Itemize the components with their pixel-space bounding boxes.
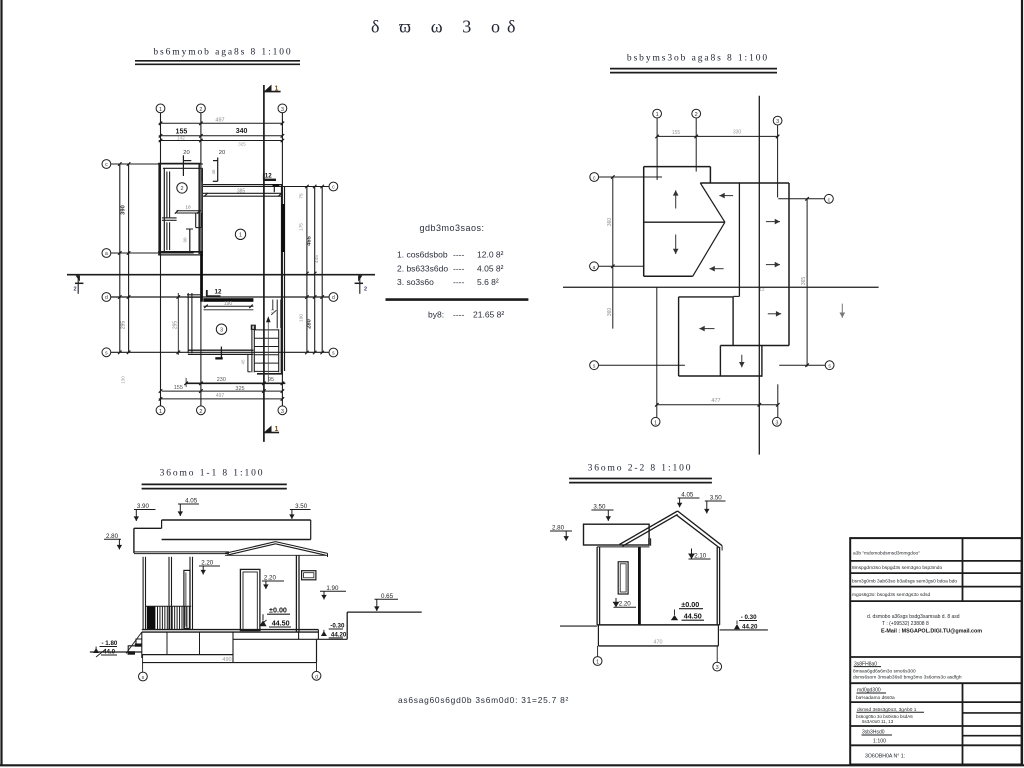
svg-text:365: 365 (801, 277, 807, 286)
svg-text:21.65 8²: 21.65 8² (473, 310, 504, 320)
svg-text:280: 280 (306, 319, 312, 329)
svg-text:c: c (828, 197, 831, 203)
svg-text:as6sag60s6gd0b 3s6m0d0: 31=2: as6sag60s6gd0b 3s6m0d0: 31=25.7 8² (398, 695, 569, 705)
svg-text:5.6 8²: 5.6 8² (477, 277, 499, 287)
svg-text:1: 1 (596, 660, 599, 666)
svg-text:s: s (828, 364, 831, 370)
svg-text:385: 385 (237, 189, 246, 195)
svg-text:1: 1 (275, 426, 279, 433)
svg-text:470: 470 (653, 640, 662, 646)
svg-text:1: 1 (239, 233, 242, 239)
svg-text:325: 325 (238, 142, 246, 147)
svg-text:445: 445 (314, 255, 320, 263)
svg-text:75: 75 (299, 193, 304, 199)
svg-text:-0.30: -0.30 (330, 623, 345, 630)
svg-text:2: 2 (199, 409, 202, 415)
svg-text:d: d (315, 674, 318, 680)
svg-text:175: 175 (299, 223, 304, 231)
svg-text:1:100: 1:100 (873, 739, 886, 745)
svg-text:360: 360 (607, 218, 613, 227)
svg-text:142: 142 (177, 135, 185, 140)
svg-text:130: 130 (121, 376, 126, 384)
svg-text:390: 390 (120, 205, 126, 215)
svg-text:----: ---- (453, 310, 464, 320)
svg-text:3: 3 (775, 420, 778, 426)
svg-text:477: 477 (711, 398, 720, 404)
svg-text:3.90: 3.90 (137, 503, 150, 510)
svg-text:E-Mail : MSGAPOL.DIGI.TU@gmaiI: E-Mail : MSGAPOL.DIGI.TU@gmaiI.com (881, 628, 982, 634)
svg-text:44.50: 44.50 (684, 612, 702, 621)
svg-text:2: 2 (695, 112, 698, 118)
svg-text:s: s (332, 351, 335, 357)
svg-text:c: c (105, 162, 108, 168)
svg-text:190: 190 (299, 314, 304, 322)
svg-text:1: 1 (275, 86, 279, 93)
svg-text:44.50: 44.50 (272, 618, 290, 627)
svg-text:----: ---- (453, 277, 464, 287)
svg-text:230: 230 (217, 377, 226, 383)
svg-text:by8:: by8: (428, 310, 444, 320)
svg-text:a: a (105, 251, 108, 257)
svg-text:497: 497 (216, 393, 225, 399)
svg-text:36omo 1-1 8 1:100: 36omo 1-1 8 1:100 (160, 469, 265, 479)
svg-text:1: 1 (159, 107, 162, 113)
svg-text:ba%adamo d6s0a: ba%adamo d6s0a (856, 695, 895, 701)
svg-text:3.50: 3.50 (593, 504, 606, 511)
svg-text:360: 360 (607, 308, 613, 317)
svg-text:6s3A0o0 11, 13: 6s3A0o0 11, 13 (862, 719, 894, 724)
svg-text:1: 1 (159, 409, 162, 415)
svg-text:2: 2 (180, 186, 183, 192)
svg-text:12.0 8²: 12.0 8² (477, 250, 504, 260)
svg-text:2.20: 2.20 (619, 601, 632, 608)
svg-text:bsbyms3ob aga8s 8 1:100: bsbyms3ob aga8s 8 1:100 (627, 54, 769, 64)
svg-text:bs6og05o 3o bs0is6o bsdA6: bs6og05o 3o bs0is6o bsdA6 (856, 714, 913, 719)
svg-text:330: 330 (733, 129, 742, 135)
svg-text:36omo 2-2 8 1:100: 36omo 2-2 8 1:100 (588, 464, 693, 474)
svg-text:d: d (105, 295, 108, 301)
svg-text:340: 340 (236, 128, 248, 135)
svg-text:2: 2 (199, 107, 202, 113)
svg-text:8msas6gd6s6m3o smo6s300: 8msas6gd6s6m3o smo6s300 (853, 668, 916, 674)
svg-text:- 1.80: - 1.80 (102, 640, 118, 647)
svg-text:20: 20 (219, 150, 225, 156)
svg-text:3. so3s6o: 3. so3s6o (397, 277, 434, 287)
svg-text:d. dsmobo a36sgs bsdg3samsab d: d. dsmobo a36sgs bsdg3samsab d. 8 asd (867, 614, 960, 620)
svg-text:18: 18 (185, 204, 191, 210)
svg-text:----: ---- (453, 250, 464, 260)
svg-text:- 0.30: - 0.30 (741, 614, 757, 621)
svg-text:bsm3g0mb 3ab63so b3a6sgs sem3g: bsm3g0mb 3ab63so b3a6sgs sem3gs0 bdoa bd… (852, 578, 957, 584)
svg-text:3.50: 3.50 (295, 503, 308, 510)
svg-text:12: 12 (265, 172, 272, 179)
svg-text:2.20: 2.20 (264, 575, 277, 582)
svg-text:δ ϖ ω 3 ο: δ ϖ ω 3 ο (371, 17, 508, 37)
svg-text:dsms6som 3msab36s0 bmg3mo 3s6o: dsms6som 3msab36s0 bmg3mo 3s6oms3o asdfg… (853, 675, 962, 681)
svg-text:c: c (593, 176, 596, 182)
svg-text:497: 497 (215, 118, 224, 124)
svg-text:12: 12 (759, 287, 765, 292)
svg-text:2.10: 2.10 (694, 553, 707, 560)
svg-text:c: c (332, 185, 335, 191)
svg-text:3.50: 3.50 (710, 495, 723, 502)
svg-text:90: 90 (183, 237, 188, 243)
svg-text:190: 190 (224, 301, 233, 307)
svg-text:2.20: 2.20 (201, 560, 214, 567)
svg-text:3O6OBH0A N° 1:: 3O6OBH0A N° 1: (865, 753, 905, 759)
svg-text:155: 155 (672, 130, 681, 136)
svg-text:3: 3 (281, 409, 284, 415)
svg-text:12: 12 (215, 289, 222, 296)
svg-text:----: ---- (453, 264, 464, 274)
svg-text:±0.00: ±0.00 (681, 600, 699, 609)
svg-text:gdb3mo3saos:: gdb3mo3saos: (419, 223, 484, 233)
svg-text:±0.00: ±0.00 (269, 606, 287, 615)
svg-text:8mspgdm3so bspgd3s sem3gso: 8mspgdm3so bspgd3s sem3gso bsp3mdo (852, 565, 942, 571)
svg-text:3: 3 (716, 665, 719, 671)
svg-text:4.05: 4.05 (185, 498, 198, 505)
svg-text:s: s (105, 350, 108, 356)
svg-text:45: 45 (241, 359, 246, 365)
svg-text:3: 3 (220, 328, 223, 334)
svg-text:2. bs633s6do: 2. bs633s6do (397, 264, 448, 274)
svg-text:1: 1 (656, 112, 659, 118)
svg-text:465: 465 (306, 235, 312, 245)
svg-text:d: d (332, 295, 335, 301)
svg-text:2: 2 (364, 287, 367, 293)
svg-text:2.80: 2.80 (552, 525, 565, 532)
svg-text:4.05 8²: 4.05 8² (477, 264, 504, 274)
svg-text:20: 20 (183, 150, 189, 156)
svg-text:295: 295 (173, 321, 179, 330)
svg-text:a: a (593, 265, 596, 271)
svg-text:mgos6g3o: bsogd3s sem3gs3o s: mgos6g3o: bsogd3s sem3gs3o sdsd (852, 592, 930, 598)
svg-text:3: 3 (281, 107, 284, 113)
svg-text:bs6mymob aga8s 8 1:100: bs6mymob aga8s 8 1:100 (153, 48, 292, 58)
svg-text:295: 295 (120, 321, 126, 330)
svg-text:1. cos6dsbob: 1. cos6dsbob (397, 250, 448, 260)
svg-text:2: 2 (74, 287, 77, 293)
svg-text:95: 95 (268, 377, 274, 383)
svg-text:s: s (142, 675, 145, 681)
svg-text:325: 325 (235, 386, 244, 392)
svg-text:T : (+99532) 23808 8: T : (+99532) 23808 8 (882, 621, 929, 627)
svg-text:490: 490 (222, 657, 231, 663)
svg-text:3: 3 (776, 119, 779, 125)
svg-text:45: 45 (211, 169, 216, 175)
svg-text:4.05: 4.05 (681, 492, 694, 499)
svg-text:δ: δ (507, 17, 515, 37)
svg-text:s: s (593, 364, 596, 370)
svg-text:a3b "mdomobdsmsd3mmgdoo": a3b "mdomobdsmsd3mmgdoo" (853, 551, 920, 557)
svg-text:155: 155 (174, 385, 183, 391)
svg-text:1: 1 (654, 420, 657, 426)
